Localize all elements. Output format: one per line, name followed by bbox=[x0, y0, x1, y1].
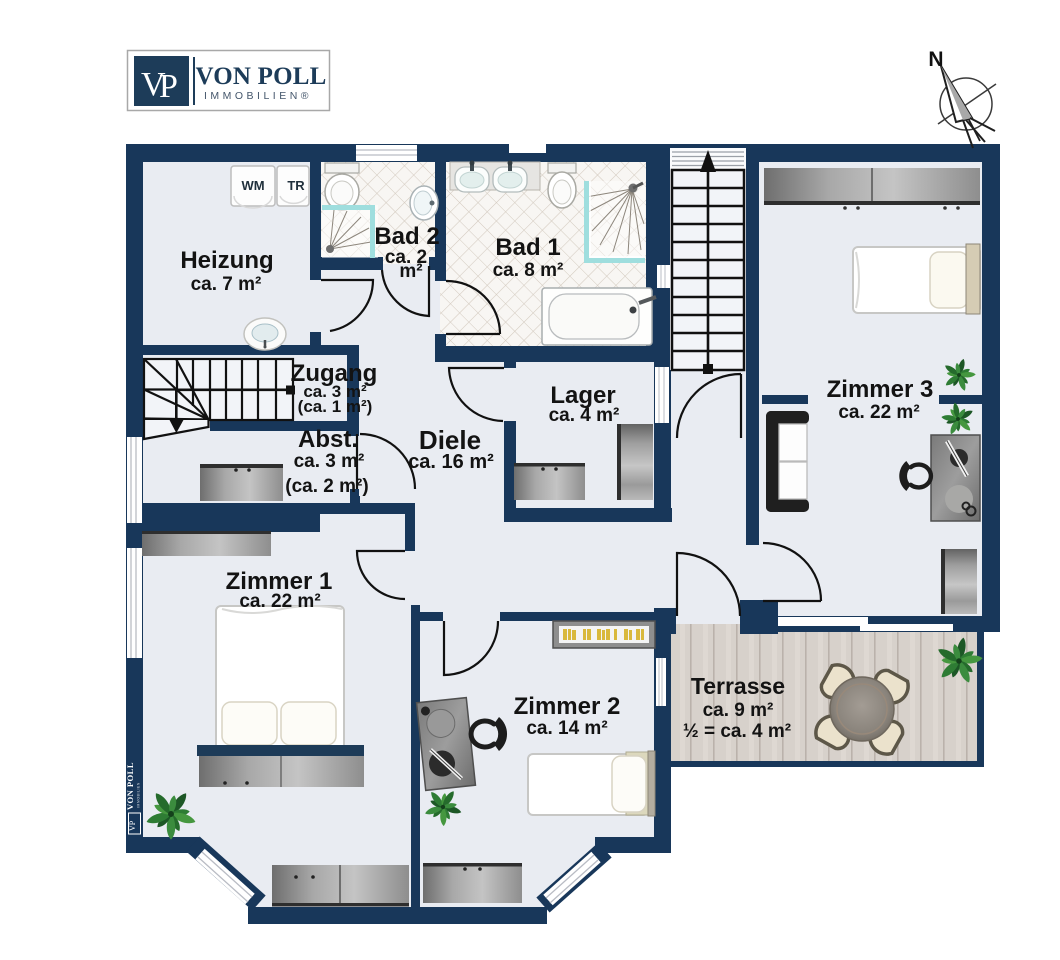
svg-text:ca. 7 m²: ca. 7 m² bbox=[191, 274, 262, 295]
svg-text:IMMOBILIEN®: IMMOBILIEN® bbox=[204, 90, 312, 102]
svg-text:ca. 14 m²: ca. 14 m² bbox=[526, 718, 607, 739]
svg-text:ca. 22 m²: ca. 22 m² bbox=[838, 402, 919, 423]
svg-text:WM: WM bbox=[241, 178, 264, 193]
svg-text:ca. 3 m²: ca. 3 m² bbox=[294, 451, 365, 472]
svg-text:ca. 22 m²: ca. 22 m² bbox=[239, 591, 320, 612]
svg-text:(ca. 1 m²): (ca. 1 m²) bbox=[298, 397, 373, 416]
svg-text:IMMOBILIEN: IMMOBILIEN bbox=[137, 782, 141, 808]
svg-text:VON POLL: VON POLL bbox=[196, 63, 327, 90]
svg-text:Zimmer 2: Zimmer 2 bbox=[514, 693, 621, 720]
svg-text:TR: TR bbox=[287, 178, 305, 193]
svg-text:ca. 16 m²: ca. 16 m² bbox=[408, 451, 494, 473]
svg-text:VP: VP bbox=[128, 820, 137, 831]
svg-text:Abst.: Abst. bbox=[298, 426, 358, 453]
svg-text:Heizung: Heizung bbox=[180, 247, 273, 274]
svg-text:m²: m² bbox=[399, 261, 422, 282]
svg-text:P: P bbox=[159, 68, 178, 105]
svg-text:ca. 4 m²: ca. 4 m² bbox=[549, 405, 620, 426]
svg-text:VON POLL: VON POLL bbox=[125, 762, 135, 810]
svg-text:ca. 9 m²: ca. 9 m² bbox=[703, 700, 774, 721]
svg-text:½ = ca. 4 m²: ½ = ca. 4 m² bbox=[683, 721, 791, 742]
svg-text:Bad 2: Bad 2 bbox=[374, 223, 439, 250]
svg-text:Bad 1: Bad 1 bbox=[495, 234, 560, 261]
svg-text:(ca. 2 m²): (ca. 2 m²) bbox=[285, 476, 368, 497]
svg-text:Zimmer 3: Zimmer 3 bbox=[827, 376, 934, 403]
svg-text:Terrasse: Terrasse bbox=[691, 673, 785, 699]
svg-text:ca. 8 m²: ca. 8 m² bbox=[493, 260, 564, 281]
